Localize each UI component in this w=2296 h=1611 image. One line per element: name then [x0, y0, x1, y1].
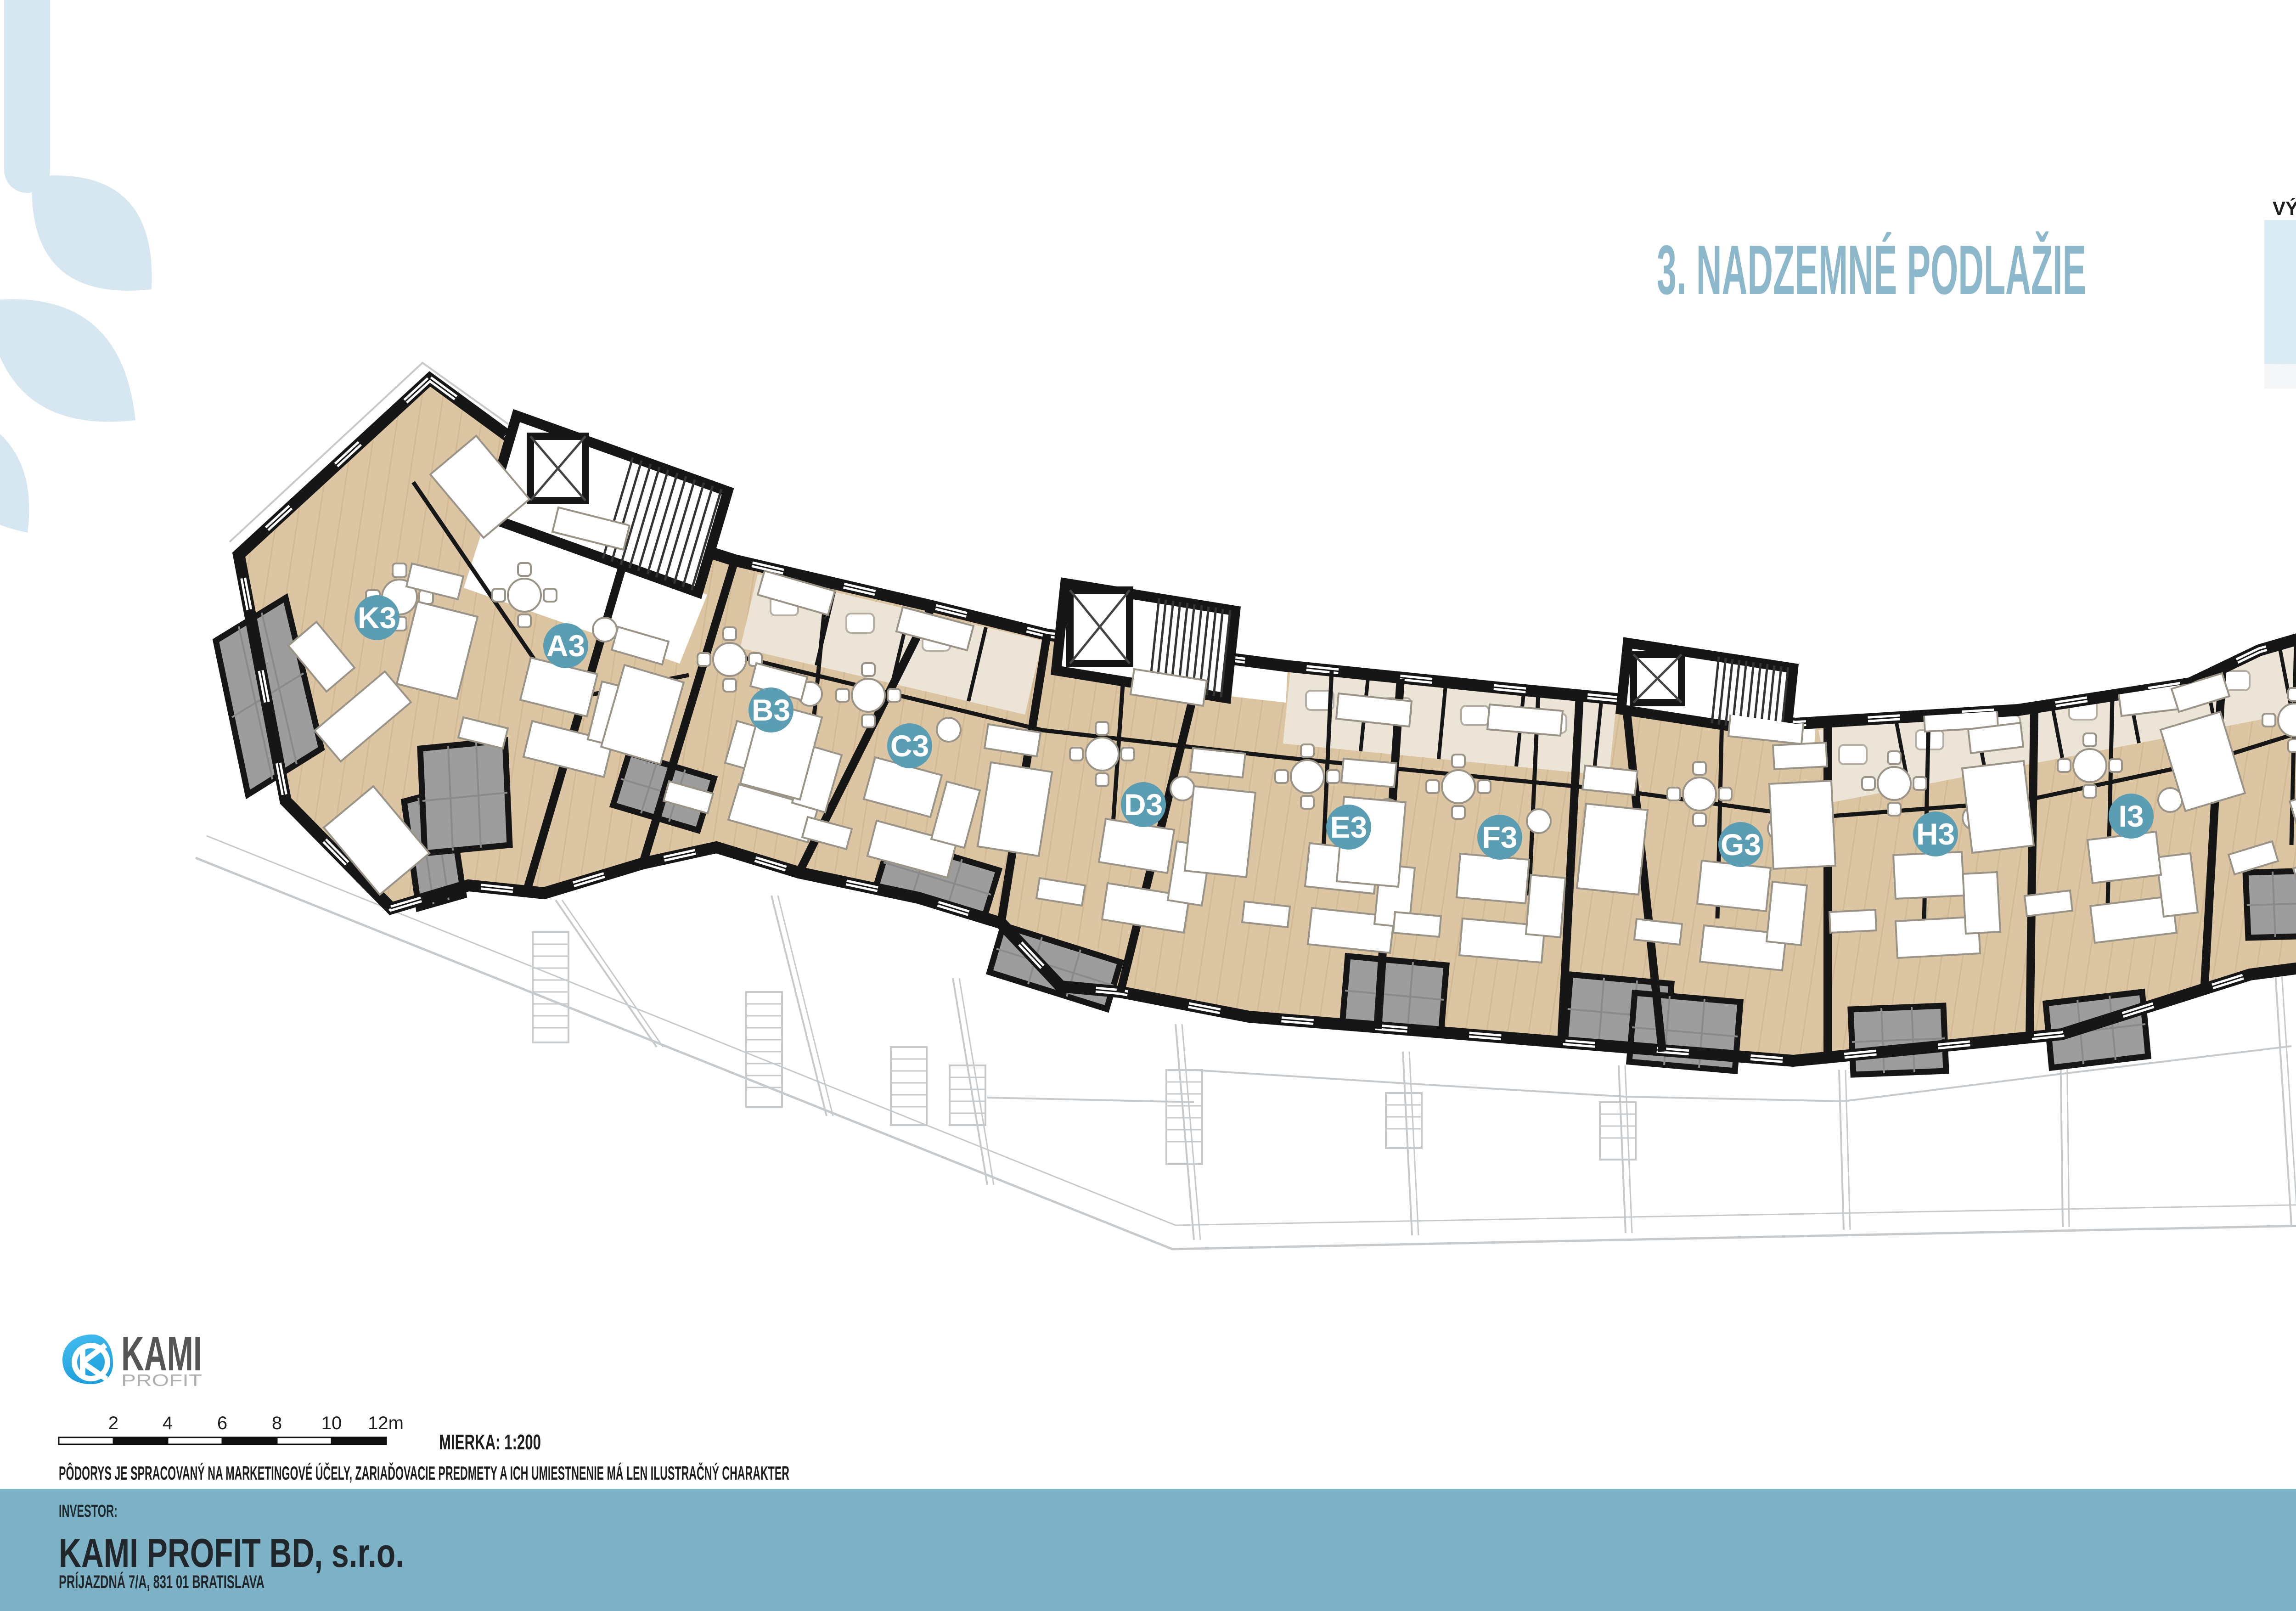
svg-text:MIERKA: 1:200: MIERKA: 1:200 [439, 1430, 541, 1454]
svg-text:INVESTOR:: INVESTOR: [59, 1502, 118, 1521]
svg-text:C3: C3 [890, 729, 929, 763]
svg-text:10: 10 [321, 1413, 342, 1433]
svg-text:8: 8 [272, 1413, 282, 1433]
svg-text:12m: 12m [368, 1413, 404, 1433]
svg-text:A3: A3 [546, 629, 585, 663]
svg-text:PÔDORYS JE SPRACOVANÝ NA MARKE: PÔDORYS JE SPRACOVANÝ NA MARKETINGOVÉ ÚČ… [59, 1462, 789, 1484]
svg-text:4: 4 [163, 1413, 173, 1433]
svg-text:D3: D3 [1124, 788, 1163, 822]
svg-text:PROFIT: PROFIT [121, 1371, 202, 1390]
svg-text:PRÍJAZDNÁ 7/A, 831 01 BRATISLA: PRÍJAZDNÁ 7/A, 831 01 BRATISLAVA [59, 1572, 264, 1592]
svg-text:K3: K3 [358, 601, 396, 635]
svg-text:VÝŠKOVÁ POZÍCIA 3NP: VÝŠKOVÁ POZÍCIA 3NP [2273, 197, 2296, 219]
svg-text:2: 2 [108, 1413, 118, 1433]
svg-text:6: 6 [217, 1413, 227, 1433]
svg-text:G3: G3 [1721, 828, 1761, 862]
svg-text:3. NADZEMNÉ PODLAŽIE: 3. NADZEMNÉ PODLAŽIE [1657, 231, 2086, 309]
svg-text:F3: F3 [1482, 820, 1517, 854]
svg-text:KAMI PROFIT BD, s.r.o.: KAMI PROFIT BD, s.r.o. [59, 1530, 404, 1576]
svg-text:H3: H3 [1916, 817, 1955, 851]
svg-text:E3: E3 [1330, 810, 1367, 844]
svg-text:B3: B3 [752, 693, 790, 727]
svg-text:I3: I3 [2118, 799, 2144, 833]
